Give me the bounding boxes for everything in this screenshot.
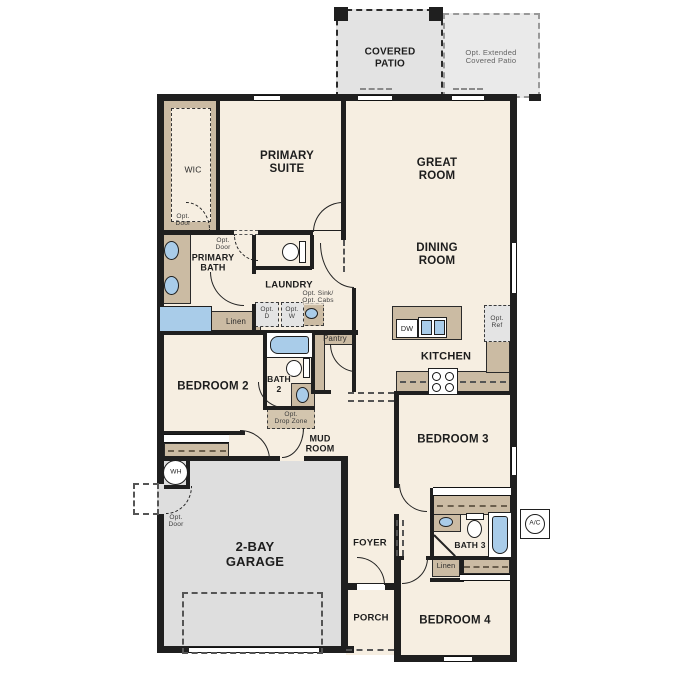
wall-wic-suite	[216, 96, 220, 232]
patio-slider-dash-1	[360, 88, 392, 90]
sink-laundry-optional	[305, 308, 318, 319]
label-opt-sink-cabs: Opt. Sink/ Opt. Cabs	[302, 291, 334, 305]
transition-foyer-1	[396, 520, 398, 556]
transition-hall-2	[348, 400, 394, 402]
label-covered-patio: COVERED PATIO	[365, 47, 416, 70]
bedroom3-closet-doors	[433, 487, 511, 496]
label-pantry: Pantry	[323, 335, 347, 343]
burner-1	[432, 372, 441, 381]
label-bath2: BATH 2	[267, 375, 291, 395]
window-bedroom4	[444, 656, 472, 662]
label-bedroom3: BEDROOM 3	[417, 433, 488, 446]
label-primary-bath: PRIMARY BATH	[192, 253, 235, 274]
label-water-heater: WH	[170, 470, 181, 477]
window-bedroom3	[511, 447, 517, 475]
tub-bath2	[270, 336, 309, 354]
sink-primary-2	[164, 276, 179, 295]
sink-bath2	[296, 387, 309, 403]
floor-plan: COVERED PATIO Opt. Extended Covered Pati…	[0, 0, 687, 687]
label-bedroom2: BEDROOM 2	[177, 380, 248, 393]
opt-door-garage-stoop	[133, 483, 159, 515]
burner-4	[445, 383, 454, 392]
toilet-primary-bowl	[282, 243, 299, 261]
label-opt-door-wic: Opt. Door	[175, 214, 190, 228]
label-linen-bath3: Linen	[437, 562, 456, 570]
patio-post-right	[429, 7, 443, 21]
toilet-bath3-bowl	[467, 520, 482, 538]
label-opt-dryer: Opt. D	[260, 307, 273, 321]
slider-great-room-2	[452, 95, 484, 101]
transition-hall-1	[348, 392, 394, 394]
window-primary-suite	[254, 95, 280, 101]
toilet-bath3-tank	[466, 513, 484, 520]
toilet-primary-tank	[299, 241, 306, 263]
burner-2	[445, 372, 454, 381]
label-opt-extended-patio: Opt. Extended Covered Patio	[465, 49, 516, 65]
sink-bath3	[439, 517, 453, 527]
label-kitchen: KITCHEN	[421, 351, 471, 364]
burner-3	[432, 383, 441, 392]
porch-edge-dashed	[346, 649, 394, 651]
kitchen-counter-right	[486, 338, 510, 373]
label-opt-washer: Opt. W	[285, 307, 298, 321]
wall-linen3-bottom	[430, 578, 462, 582]
label-linen-primary: Linen	[226, 318, 246, 326]
label-bedroom4: BEDROOM 4	[419, 614, 490, 627]
patio-post-left	[334, 7, 348, 21]
label-primary-suite: PRIMARY SUITE	[260, 150, 314, 176]
wall-wc-bottom	[252, 266, 312, 270]
label-foyer: FOYER	[353, 539, 387, 550]
bedroom4-closet-doors	[460, 574, 510, 581]
wall-bedroom3-left-upper	[394, 391, 399, 488]
shower-primary	[159, 306, 212, 332]
kitchen-sink-basin-2	[434, 320, 445, 335]
wall-exterior-left	[157, 94, 164, 653]
label-dining-room: DINING ROOM	[416, 242, 457, 268]
wall-garage-top-right	[304, 456, 345, 461]
label-opt-drop-zone: Opt. Drop Zone	[275, 412, 308, 426]
bedroom3-shelf-dash	[437, 505, 507, 507]
wall-garage-right	[341, 456, 348, 652]
label-porch: PORCH	[353, 614, 388, 625]
label-great-room: GREAT ROOM	[417, 157, 457, 183]
wall-exterior-right	[510, 94, 517, 662]
wall-wc-right	[310, 233, 314, 269]
bedroom2-shelf-dash	[168, 450, 226, 452]
garage-driveway-outline	[182, 592, 323, 654]
sink-primary-1	[164, 241, 179, 260]
kitchen-sink-basin-1	[421, 320, 432, 335]
patio-wall-nub	[529, 94, 541, 101]
tub-bath3	[492, 516, 508, 554]
wall-laundry-right	[352, 288, 356, 334]
label-mud-room: MUD ROOM	[306, 434, 335, 455]
toilet-bath2-tank	[303, 358, 310, 378]
bedroom2-closet-doors	[164, 434, 229, 443]
range-icon	[428, 368, 458, 395]
patio-slider-dash-2	[453, 88, 483, 90]
label-dishwasher: DW	[401, 325, 413, 333]
wall-bath2-bottom	[263, 406, 315, 410]
label-wic: WIC	[184, 165, 201, 174]
label-opt-ref: Opt. Ref	[490, 316, 503, 330]
transition-foyer-2	[402, 520, 404, 556]
wall-bedroom4-left	[394, 556, 401, 662]
bedroom4-shelf-dash	[464, 566, 508, 568]
label-bath3: BATH 3	[454, 541, 485, 551]
slider-great-room-1	[358, 95, 392, 101]
label-garage: 2-BAY GARAGE	[226, 540, 284, 570]
label-opt-door-bath: Opt. Door	[215, 238, 230, 252]
wall-pantry-bottom	[311, 390, 331, 394]
label-opt-door-garage: Opt. Door	[168, 515, 183, 529]
window-dining	[511, 243, 517, 293]
label-ac-unit: A/C	[529, 521, 540, 528]
